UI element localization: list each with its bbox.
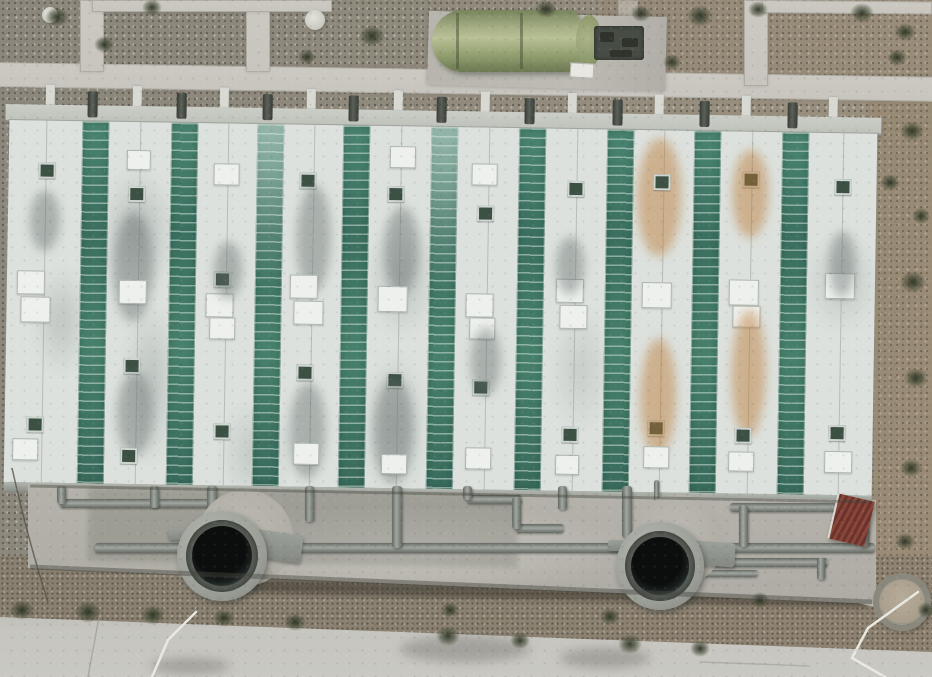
roof-skylight-panel [559, 305, 587, 329]
tank-dark-interior [192, 526, 252, 586]
roof-skylight-panel [643, 446, 669, 468]
shrub [141, 605, 165, 625]
process-pipe [558, 486, 567, 510]
roof-skylight-panel [20, 296, 50, 322]
roof-access-hatch [27, 416, 44, 432]
fence-post [481, 91, 490, 111]
roof-access-hatch [128, 186, 145, 202]
road-stain [150, 658, 230, 674]
fiberglass-tank-body [432, 10, 580, 72]
fence-post [133, 86, 142, 106]
roof-skylight-panel [390, 146, 416, 168]
manhole-cover [305, 10, 325, 30]
shrub [359, 25, 385, 47]
roof-green-louver-stripe [689, 131, 722, 493]
shrub [75, 601, 101, 623]
roof-skylight-panel [465, 293, 493, 317]
process-pipe [622, 486, 632, 538]
roof-access-hatch [387, 186, 404, 202]
roof-green-louver-stripe [602, 129, 635, 491]
shrub [900, 459, 922, 478]
roof-skylight-panel [119, 280, 147, 304]
process-pipe [57, 486, 66, 504]
tank-strap [456, 13, 459, 69]
pipe-riser-stub [612, 100, 622, 126]
clarifier-tank-left [177, 511, 267, 601]
fence-post [220, 87, 229, 107]
pipe-riser-stub [176, 93, 186, 119]
shrub [887, 49, 907, 66]
process-pipe [150, 486, 159, 508]
roof-access-hatch [653, 174, 670, 190]
shrub [894, 23, 916, 42]
process-pipe [817, 558, 825, 580]
shrub [900, 121, 924, 141]
path-top-edge-left [92, 0, 332, 12]
roof-access-hatch [828, 425, 845, 441]
roof-skylight-panel [12, 438, 38, 460]
shrub [748, 1, 768, 18]
process-pipe [739, 505, 748, 547]
shrub [663, 54, 681, 69]
pipe-riser-stub [262, 94, 272, 120]
shrub [298, 49, 316, 64]
roof-green-louver-stripe [514, 128, 547, 490]
roof-access-hatch [296, 365, 313, 381]
path-top-edge-right [762, 0, 932, 14]
process-pipe [516, 524, 564, 533]
fence-post [307, 89, 316, 109]
roof-skylight-panel [293, 301, 323, 325]
shrub [441, 602, 459, 617]
aerial-photo-scene [0, 0, 932, 677]
fence-post [829, 97, 838, 117]
roof-access-hatch [120, 448, 137, 464]
shrub [213, 609, 235, 628]
roof-access-hatch [39, 163, 56, 179]
roof-green-louver-stripe [166, 123, 199, 485]
roof-green-louver-stripe [426, 127, 459, 489]
clarifier-tank-right [616, 522, 704, 610]
shrub [600, 608, 620, 625]
roof-access-hatch [834, 179, 851, 195]
fence-post [742, 96, 751, 116]
shrub [687, 5, 713, 27]
roof-access-hatch [567, 181, 584, 197]
fence-post [46, 85, 55, 105]
process-pipe [60, 499, 230, 508]
shrub [900, 271, 926, 293]
pipe-riser-stub [787, 102, 797, 128]
shrub [912, 208, 930, 223]
roof-skylight-panel [642, 282, 672, 308]
valve-part [610, 50, 632, 57]
roof-deck [4, 120, 878, 496]
roof-skylight-panel [17, 270, 45, 294]
circular-pit-interior [880, 580, 924, 624]
roof-access-hatch [734, 427, 751, 443]
fence-post [655, 94, 664, 114]
shrub [436, 626, 460, 646]
shrub [142, 0, 162, 16]
process-pipe [392, 486, 402, 548]
pipe-riser-stub [87, 91, 97, 117]
shrub [510, 632, 530, 649]
roof-access-hatch [477, 205, 494, 221]
pipe-riser-stub [436, 97, 446, 123]
shrub [690, 640, 710, 657]
shrub [45, 7, 69, 27]
roof-skylight-panel [824, 451, 852, 473]
roof-skylight-panel [471, 163, 497, 185]
shrub [10, 600, 34, 620]
roof-access-hatch [561, 427, 578, 443]
shrub [895, 533, 915, 550]
roof-green-louver-stripe [777, 132, 810, 494]
process-pipe [463, 486, 472, 500]
roof-skylight-panel [290, 274, 318, 298]
roof-skylight-panel [377, 286, 407, 312]
valve-part [600, 32, 614, 42]
shrub [631, 5, 651, 22]
roof-skylight-panel [213, 163, 239, 185]
shrub [284, 613, 306, 632]
roof-skylight-panel [381, 454, 407, 474]
roof-skylight-panel [555, 455, 579, 475]
roof-skylight-panel [209, 317, 235, 339]
roof-skylight-panel [465, 447, 491, 469]
treatment-building-roof [0, 84, 886, 510]
roof-skylight-panel [728, 451, 754, 471]
roof-skylight-panel [293, 443, 319, 465]
fence-post [568, 93, 577, 113]
shrub [751, 592, 769, 607]
process-pipe [512, 497, 521, 529]
pipe-riser-stub [699, 101, 709, 127]
shrub [917, 602, 932, 617]
shrub [850, 3, 874, 23]
fence-post [394, 90, 403, 110]
roof-access-hatch [213, 423, 230, 439]
shrub [904, 368, 928, 388]
pipe-riser-stub [348, 95, 358, 121]
shrub [94, 36, 114, 53]
control-box [570, 62, 595, 78]
process-pipe [305, 486, 314, 522]
roof-skylight-panel [127, 150, 151, 170]
roof-skylight-panel [729, 279, 759, 305]
roof-green-louver-stripe [252, 124, 285, 486]
roof-green-louver-stripe [77, 121, 110, 483]
pipe-riser-stub [524, 98, 534, 124]
shrub [618, 634, 642, 654]
shrub [880, 174, 900, 191]
tank-dark-interior [631, 537, 689, 595]
roof-green-louver-stripe [338, 125, 371, 487]
tank-strap [520, 13, 523, 69]
valve-part [622, 38, 638, 47]
